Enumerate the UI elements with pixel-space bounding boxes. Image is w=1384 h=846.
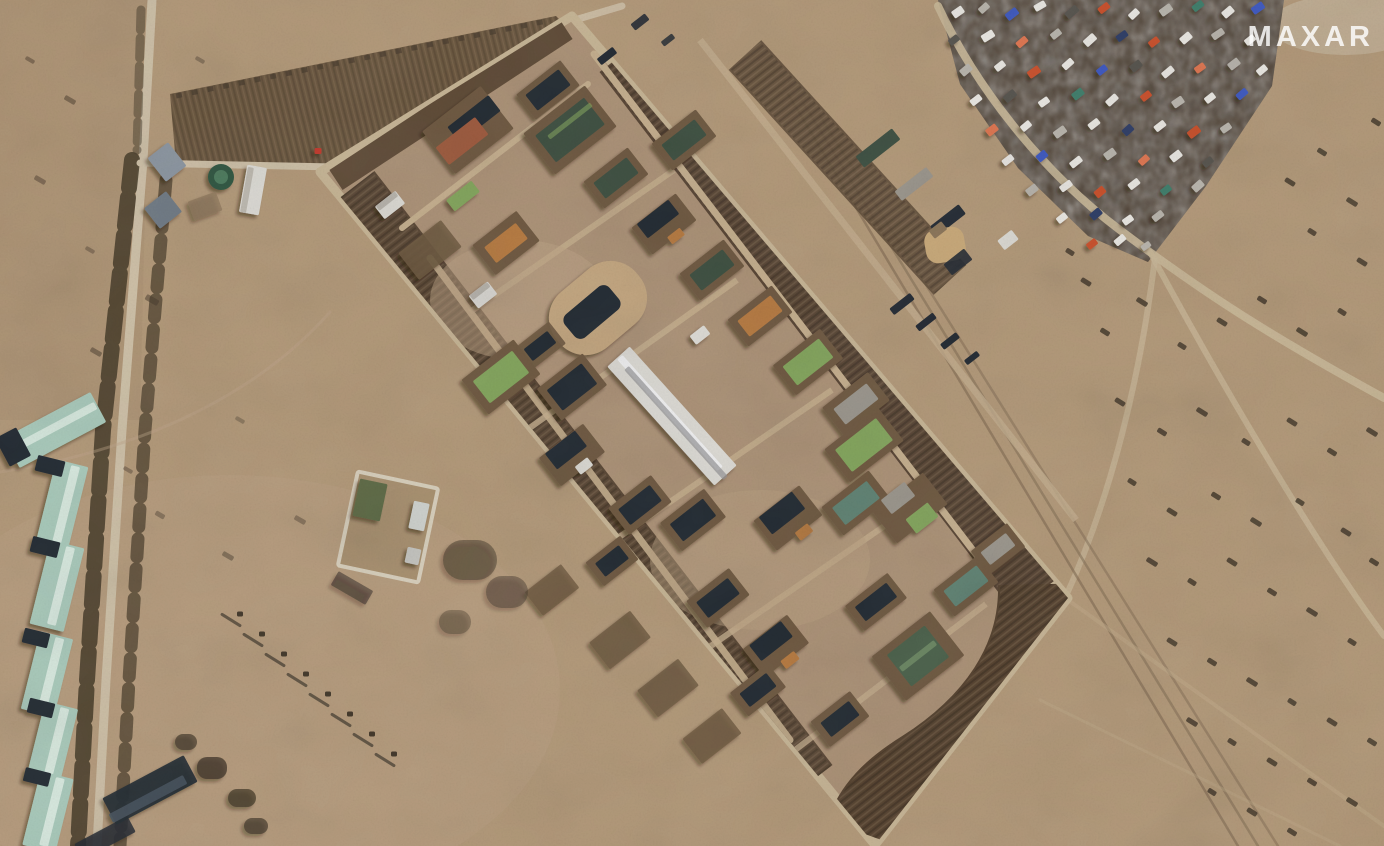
maxar-watermark: MAXAR [1248,21,1374,53]
satellite-view: MAXAR [0,0,1384,846]
noise-overlay-light [0,0,1384,846]
satellite-image: MAXAR [0,0,1384,846]
